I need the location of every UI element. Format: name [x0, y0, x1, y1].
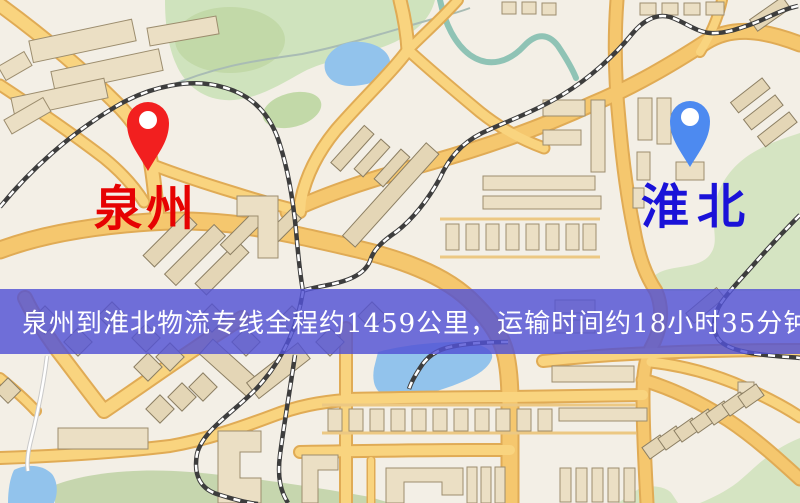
route-info-banner: 泉州到淮北物流专线全程约1459公里，运输时间约18小时35分钟.: [0, 289, 800, 354]
route-info-text: 泉州到淮北物流专线全程约1459公里，运输时间约18小时35分钟.: [0, 303, 800, 340]
origin-pin-hole: [139, 111, 157, 129]
origin-city-label: 泉州: [94, 181, 198, 237]
destination-city-label: 淮北: [641, 179, 753, 235]
map-view: 泉州 淮北 泉州到淮北物流专线全程约1459公里，运输时间约18小时35分钟.: [0, 0, 800, 503]
map-background: 泉州 淮北: [0, 0, 800, 503]
destination-pin-hole: [681, 108, 699, 126]
